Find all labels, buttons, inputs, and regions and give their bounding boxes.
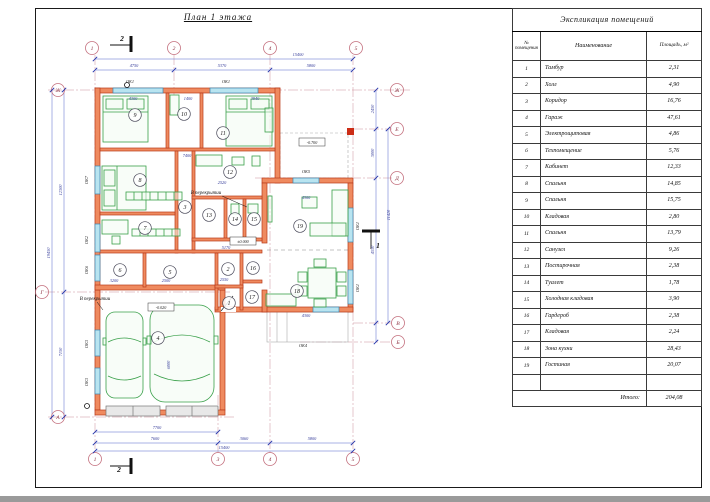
table-row: 3Коридор16,76 <box>513 94 702 111</box>
room-area-cell: 2,31 <box>647 61 702 78</box>
dimension-label: 4300 <box>302 195 311 200</box>
window-tag: ОК5 <box>302 169 311 174</box>
table-row: 2Холл4,90 <box>513 77 702 94</box>
room-name-cell: Санузел <box>541 242 647 259</box>
room-table-rows: 1Тамбур2,312Холл4,903Коридор16,764Гараж4… <box>513 61 702 375</box>
axis-label-bottom: 3 <box>216 457 220 463</box>
room-number-cell: 8 <box>513 176 541 193</box>
room-number-cell: 6 <box>513 143 541 160</box>
chimney-marker <box>347 128 354 135</box>
axis-label-top: 4 <box>269 46 272 52</box>
table-row: 9Спальня15,75 <box>513 193 702 210</box>
room-area-cell: 14,85 <box>647 176 702 193</box>
room-name-cell: Холл <box>541 77 647 94</box>
drawing-sheet: План 1 этажа <box>0 0 710 502</box>
room-name-cell: Кладовая <box>541 325 647 342</box>
axis-label-left: Ж <box>54 88 61 94</box>
dimension-label: 6000 <box>166 360 171 369</box>
dimension-label: 5170 <box>222 245 231 250</box>
room-name-cell: Гараж <box>541 110 647 127</box>
room-number: 3 <box>183 205 187 211</box>
dimension-label: 3200 <box>110 278 119 283</box>
level-mark: ±0.000 <box>237 239 248 244</box>
table-row: 6Техпомещение5,76 <box>513 143 702 160</box>
axis-label-right: Ж <box>393 88 400 94</box>
dimension-label: 7400 <box>183 153 192 158</box>
table-row: 19Гостиная20,07 <box>513 358 702 375</box>
room-name-cell: Электрощитовая <box>541 127 647 144</box>
dimension-label: 4300 <box>129 96 138 101</box>
room-name-cell: Спальня <box>541 226 647 243</box>
room-area-cell: 16,76 <box>647 94 702 111</box>
dimension-label: 11420 <box>386 209 391 220</box>
ceiling-note: В перекрытии <box>191 191 222 196</box>
total-label: Итого: <box>513 391 647 407</box>
axis-label-bottom: 5 <box>352 457 355 463</box>
room-number: 4 <box>157 335 160 342</box>
room-number: 11 <box>220 131 226 137</box>
room-number-cell: 15 <box>513 292 541 309</box>
room-number-cell: 10 <box>513 209 541 226</box>
room-number: 19 <box>297 224 303 230</box>
room-number: 14 <box>232 216 238 223</box>
room-number: 2 <box>227 267 230 273</box>
room-explication-table: Экспликация помещений № помещения Наимен… <box>512 8 702 407</box>
axis-label-top: 5 <box>355 46 358 52</box>
table-total-row: Итого: 204,08 <box>513 391 702 407</box>
room-name-cell: Постирочная <box>541 259 647 276</box>
dimension-label: 2500 <box>162 278 171 283</box>
room-number: 1 <box>228 301 231 307</box>
room-area-cell: 3,90 <box>647 292 702 309</box>
room-number: 6 <box>119 268 122 274</box>
room-number: 18 <box>294 289 300 295</box>
dimension-label: 2550 <box>220 277 229 282</box>
table-row: 13Постирочная2,38 <box>513 259 702 276</box>
room-number-cell: 12 <box>513 242 541 259</box>
section-number: 1 <box>376 241 380 250</box>
sheet-edge-shadow <box>0 496 710 502</box>
table-empty-row <box>513 374 702 391</box>
column-header-name: Наименование <box>541 32 647 61</box>
window-tag: ОК3 <box>84 340 89 348</box>
room-area-cell: 20,07 <box>647 358 702 375</box>
room-number-cell: 9 <box>513 193 541 210</box>
room-number-cell: 3 <box>513 94 541 111</box>
level-mark: -0.700 <box>307 140 318 145</box>
room-area-cell: 28,43 <box>647 341 702 358</box>
room-number: 12 <box>227 170 233 176</box>
room-number-cell: 14 <box>513 275 541 292</box>
room-name-cell: Гостиная <box>541 358 647 375</box>
window-tag: ОК1 <box>126 79 134 84</box>
dimension-label: 7600 <box>151 436 160 441</box>
section-number: 2 <box>116 465 121 474</box>
axis-label-left: Г <box>39 290 44 296</box>
dimension-label: 3060 <box>240 436 249 441</box>
window-tag: ОК1 <box>355 284 360 292</box>
table-row: 10Кладовая2,80 <box>513 209 702 226</box>
total-value: 204,08 <box>647 391 702 407</box>
room-number: 10 <box>181 112 187 118</box>
room-name-cell: Кабинет <box>541 160 647 177</box>
table-row: 8Спальня14,85 <box>513 176 702 193</box>
window-tag: ОК6 <box>84 265 89 274</box>
room-number: 17 <box>249 295 256 301</box>
room-name-cell: Зона кухни <box>541 341 647 358</box>
table-header-row: № помещения Наименование Площадь, м² <box>513 32 702 61</box>
table-row: 17Кладовая2,24 <box>513 325 702 342</box>
dimension-label: 4550 <box>370 245 375 254</box>
axis-label-bottom: 1 <box>94 457 97 463</box>
axis-label-right: Б <box>395 340 400 346</box>
room-number: 5 <box>169 270 172 276</box>
room-number-cell: 18 <box>513 341 541 358</box>
table-row: 11Спальня13,79 <box>513 226 702 243</box>
room-area-cell: 5,76 <box>647 143 702 160</box>
room-name-cell: Спальня <box>541 176 647 193</box>
room-number: 8 <box>139 178 142 184</box>
dimension-label: 5370 <box>218 63 227 68</box>
window-tag: ОК7 <box>84 175 89 184</box>
axis-label-right: Е <box>394 127 399 133</box>
table-row: 15Холодная кладовая3,90 <box>513 292 702 309</box>
table-row: 16Гардероб2,38 <box>513 308 702 325</box>
window-tag: ОК3 <box>84 378 89 386</box>
dimension-label: 4750 <box>130 63 139 68</box>
room-area-cell: 9,26 <box>647 242 702 259</box>
column-header-number: № помещения <box>513 32 541 61</box>
dimension-label: 4300 <box>302 313 311 318</box>
window-tag: ОК2 <box>84 235 89 244</box>
dimension-label: 3940 <box>251 96 260 101</box>
dimension-label: 2450 <box>370 104 375 113</box>
room-number-cell: 4 <box>513 110 541 127</box>
table-row: 18Зона кухни28,43 <box>513 341 702 358</box>
room-area-cell: 15,75 <box>647 193 702 210</box>
room-number-cell: 16 <box>513 308 541 325</box>
room-name-cell: Спальня <box>541 193 647 210</box>
table-title-row: Экспликация помещений <box>513 9 702 32</box>
dimension-label: 15400 <box>293 52 305 57</box>
dimension-label: 1400 <box>184 96 193 101</box>
room-number: 9 <box>134 113 137 119</box>
table-row: 14Туалет1,78 <box>513 275 702 292</box>
section-number: 2 <box>119 34 124 43</box>
axis-label-top: 2 <box>173 46 176 52</box>
room-number: 13 <box>206 213 212 219</box>
room-area-cell: 13,79 <box>647 226 702 243</box>
room-name-cell: Техпомещение <box>541 143 647 160</box>
room-name-cell: Тамбур <box>541 61 647 78</box>
dimension-label: 15400 <box>219 445 231 450</box>
room-area-cell: 2,38 <box>647 308 702 325</box>
room-area-cell: 4,90 <box>647 77 702 94</box>
room-number: 15 <box>251 217 257 223</box>
dimension-label: 5800 <box>308 436 317 441</box>
room-area-cell: 2,80 <box>647 209 702 226</box>
room-name-cell: Кладовая <box>541 209 647 226</box>
dimension-label: 19450 <box>46 247 51 259</box>
dimension-label: 12300 <box>58 184 63 196</box>
table-row: 5Электрощитовая4,86 <box>513 127 702 144</box>
axis-label-right: В <box>396 321 400 327</box>
room-number-cell: 5 <box>513 127 541 144</box>
table-row: 1Тамбур2,31 <box>513 61 702 78</box>
axis-label-bottom: 4 <box>269 457 272 463</box>
window-tag: ОК1 <box>355 222 360 230</box>
room-number-cell: 7 <box>513 160 541 177</box>
room-number-cell: 2 <box>513 77 541 94</box>
room-area-cell: 2,38 <box>647 259 702 276</box>
window-tag: ОК1 <box>222 79 230 84</box>
dimension-label: 7150 <box>58 347 63 356</box>
level-mark: -0.020 <box>156 305 167 310</box>
axis-label-top: 1 <box>91 46 94 52</box>
column-header-area: Площадь, м² <box>647 32 702 61</box>
table-title: Экспликация помещений <box>513 9 702 32</box>
room-number-cell: 13 <box>513 259 541 276</box>
room-area-cell: 1,78 <box>647 275 702 292</box>
room-name-cell: Туалет <box>541 275 647 292</box>
dimension-label: 2520 <box>218 180 227 185</box>
room-number: 16 <box>250 266 256 272</box>
table-row: 4Гараж47,61 <box>513 110 702 127</box>
dimension-label: 7700 <box>153 425 162 430</box>
table-row: 12Санузел9,26 <box>513 242 702 259</box>
window-tag: ОК4 <box>299 343 308 348</box>
axis-label-right: Д <box>394 176 399 182</box>
room-name-cell: Гардероб <box>541 308 647 325</box>
room-area-cell: 12,33 <box>647 160 702 177</box>
ceiling-note: В перекрытии <box>80 297 111 302</box>
room-name-cell: Коридор <box>541 94 647 111</box>
room-number-cell: 17 <box>513 325 541 342</box>
room-number-cell: 11 <box>513 226 541 243</box>
room-number-cell: 19 <box>513 358 541 375</box>
room-name-cell: Холодная кладовая <box>541 292 647 309</box>
room-area-cell: 4,86 <box>647 127 702 144</box>
room-area-cell: 2,24 <box>647 325 702 342</box>
dimension-label: 5800 <box>307 63 316 68</box>
axis-label-left: А <box>55 415 60 421</box>
table-row: 7Кабинет12,33 <box>513 160 702 177</box>
dimension-label: 3000 <box>370 148 375 157</box>
room-area-cell: 47,61 <box>647 110 702 127</box>
room-number-cell: 1 <box>513 61 541 78</box>
